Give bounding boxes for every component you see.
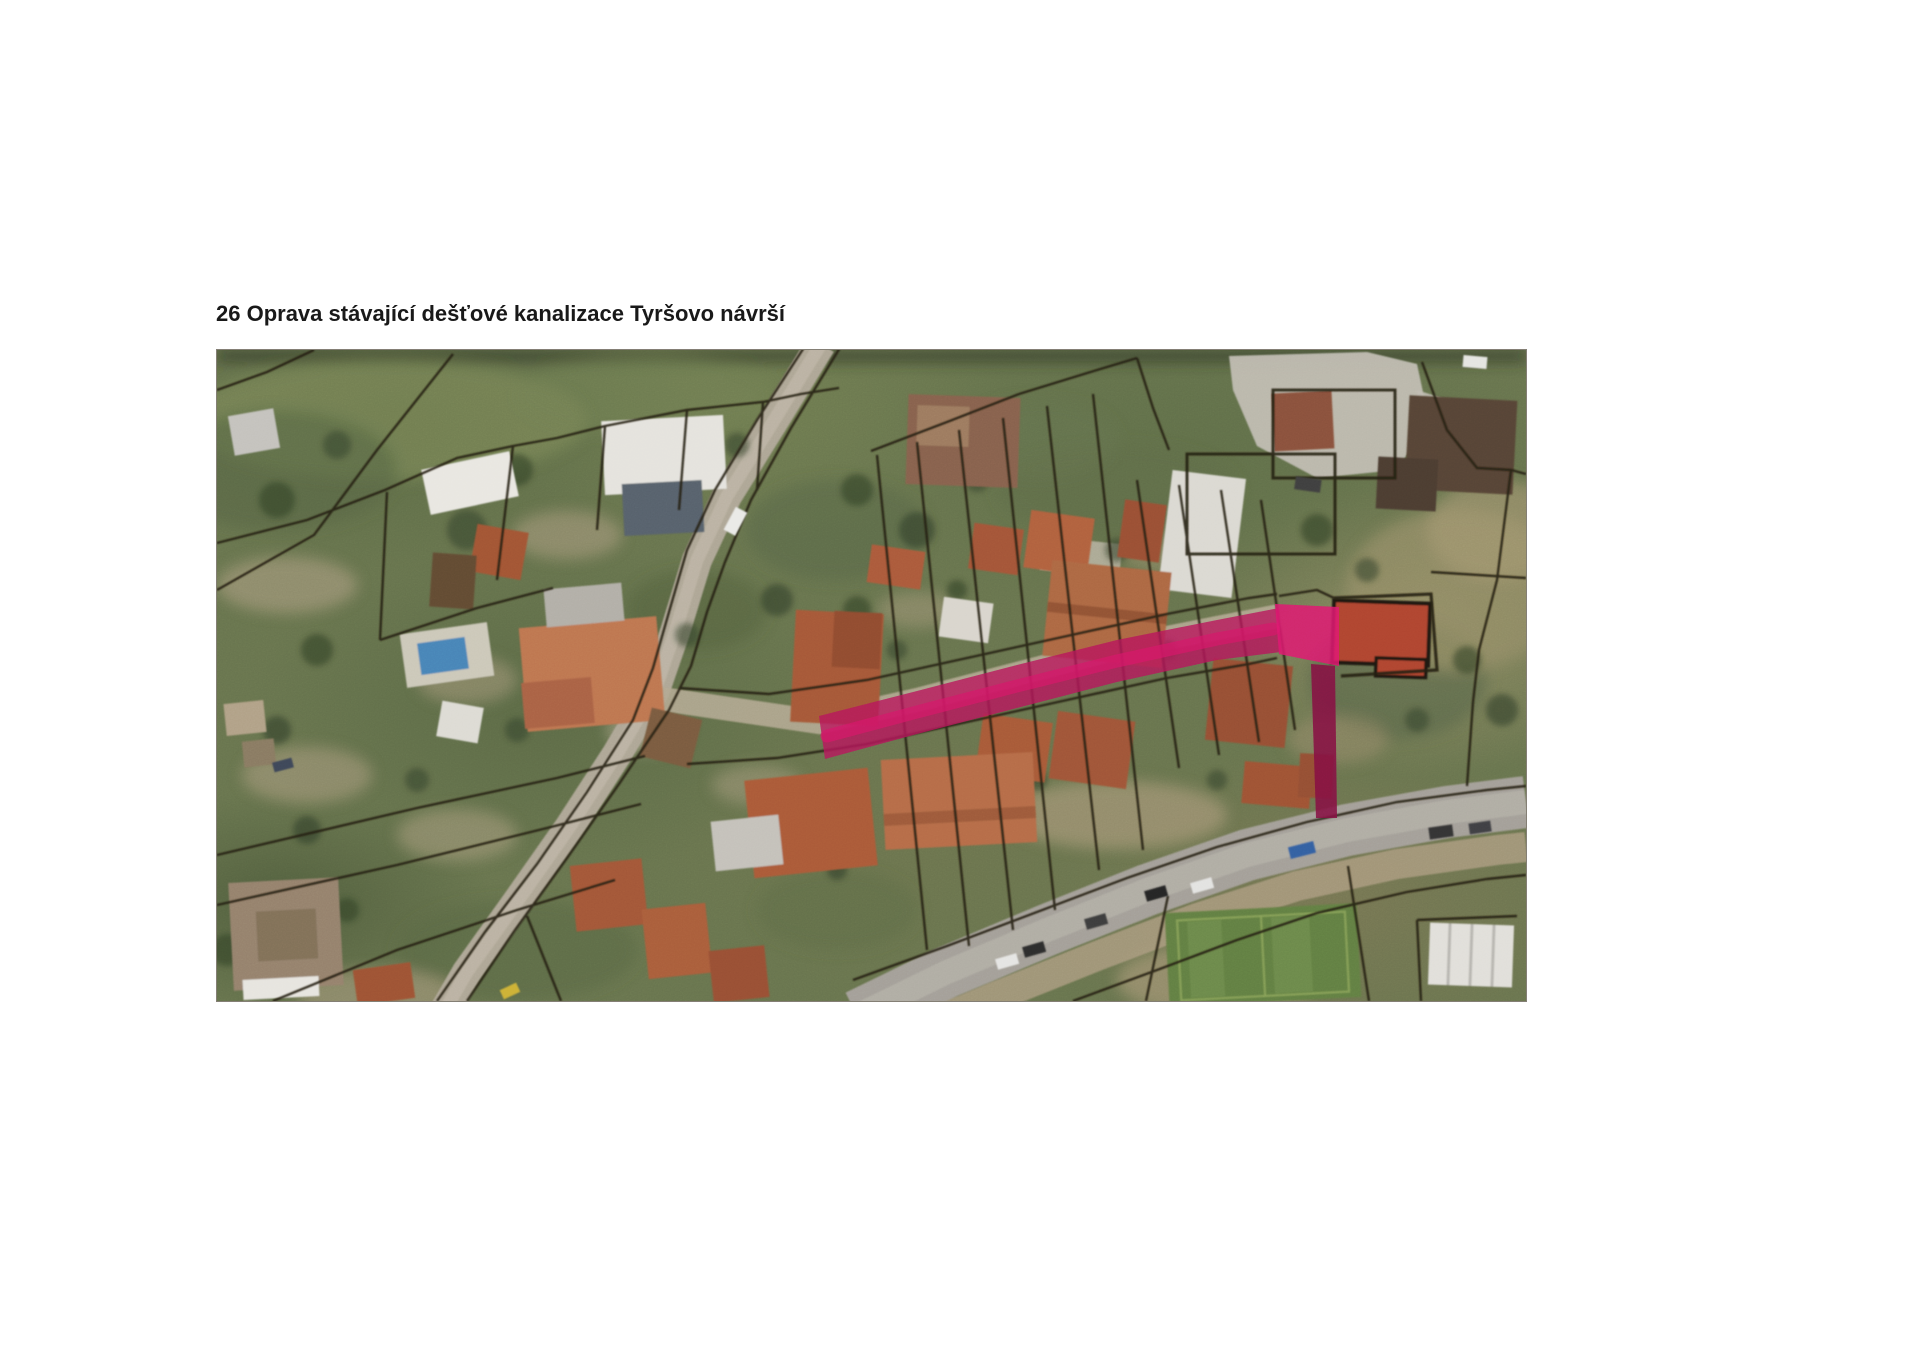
document-page: 26 Oprava stávající dešťové kanalizace T…: [0, 0, 1920, 1358]
aerial-map-canvas: [217, 350, 1526, 1001]
aerial-map-image: [216, 349, 1527, 1002]
photo-grain: [217, 350, 1526, 1001]
page-title: 26 Oprava stávající dešťové kanalizace T…: [216, 301, 785, 327]
